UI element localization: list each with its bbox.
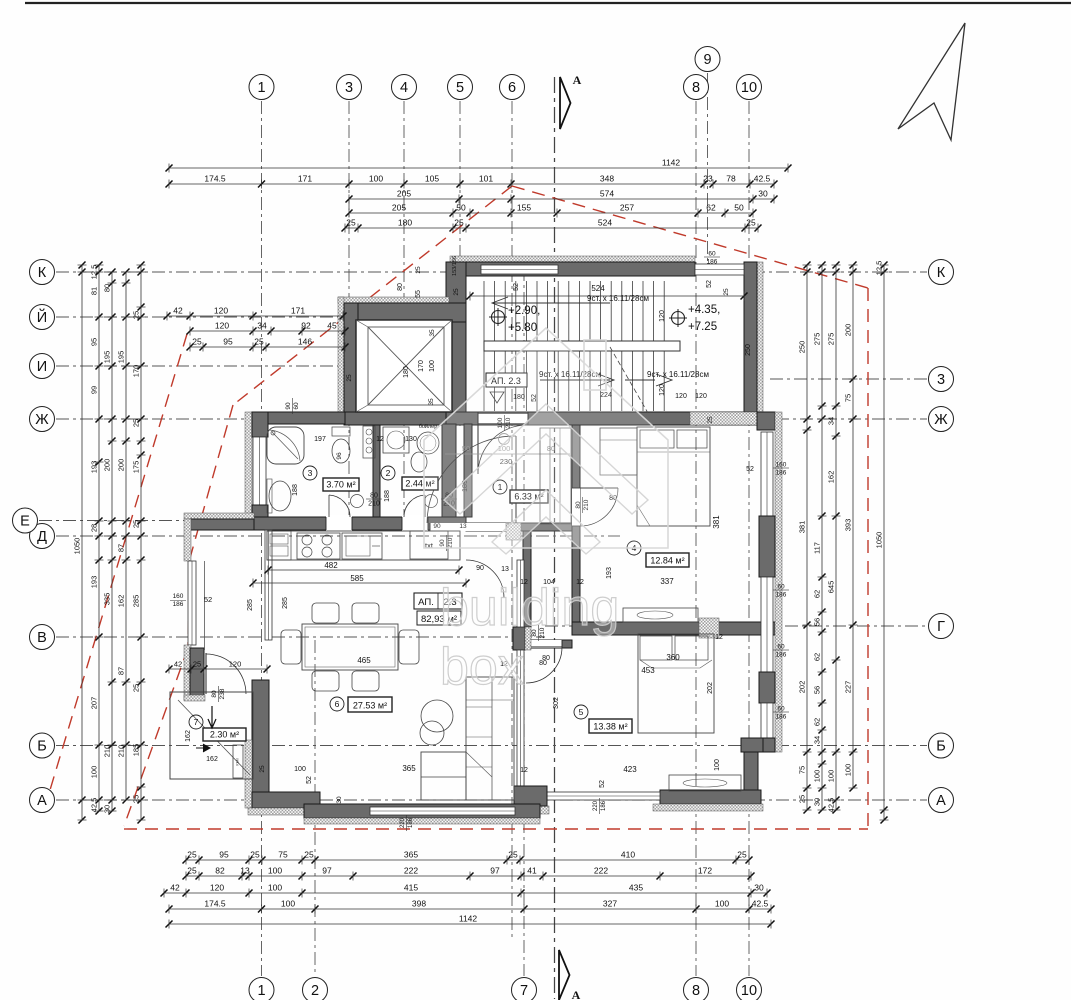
svg-text:25: 25 xyxy=(746,218,756,228)
svg-text:222: 222 xyxy=(404,866,418,876)
svg-text:62: 62 xyxy=(813,590,822,598)
svg-text:1142: 1142 xyxy=(662,158,681,168)
svg-text:30: 30 xyxy=(813,798,822,806)
svg-text:120: 120 xyxy=(210,883,224,893)
svg-text:56: 56 xyxy=(813,686,822,694)
svg-text:Г: Г xyxy=(937,619,945,635)
svg-text:188: 188 xyxy=(292,484,299,496)
svg-text:Б: Б xyxy=(37,739,47,755)
svg-text:207: 207 xyxy=(90,697,99,710)
svg-text:80: 80 xyxy=(103,284,112,292)
svg-text:25: 25 xyxy=(723,288,730,296)
svg-text:210: 210 xyxy=(368,501,380,508)
svg-text:25: 25 xyxy=(132,795,141,803)
svg-text:435: 435 xyxy=(629,883,643,893)
svg-text:120: 120 xyxy=(214,306,228,316)
svg-text:130: 130 xyxy=(405,436,417,443)
svg-text:30: 30 xyxy=(336,796,343,804)
svg-text:348: 348 xyxy=(600,174,614,184)
svg-text:42.5: 42.5 xyxy=(754,174,771,184)
svg-text:34: 34 xyxy=(813,736,822,744)
svg-text:205: 205 xyxy=(392,203,406,213)
svg-text:162: 162 xyxy=(827,471,836,484)
svg-text:5: 5 xyxy=(456,80,464,96)
svg-text:8: 8 xyxy=(692,80,700,96)
svg-text:393: 393 xyxy=(844,519,853,532)
svg-text:186: 186 xyxy=(776,652,787,659)
svg-text:30: 30 xyxy=(758,189,768,199)
svg-text:30: 30 xyxy=(754,883,764,893)
svg-text:162: 162 xyxy=(206,756,218,763)
svg-text:56: 56 xyxy=(813,618,822,626)
svg-text:28: 28 xyxy=(90,524,99,532)
svg-text:52: 52 xyxy=(746,466,754,473)
svg-text:25: 25 xyxy=(453,288,460,296)
svg-text:327: 327 xyxy=(603,899,617,909)
svg-text:155: 155 xyxy=(517,203,531,213)
svg-text:100: 100 xyxy=(813,770,822,783)
svg-text:Д: Д xyxy=(37,529,47,545)
svg-text:52: 52 xyxy=(513,283,520,291)
svg-text:45: 45 xyxy=(327,321,337,331)
svg-text:1142: 1142 xyxy=(459,914,478,924)
svg-text:6: 6 xyxy=(508,80,516,96)
svg-text:К: К xyxy=(38,265,47,281)
svg-text:+4.35,: +4.35, xyxy=(688,304,720,316)
svg-text:524: 524 xyxy=(598,218,612,228)
svg-text:120: 120 xyxy=(675,393,687,400)
svg-text:60: 60 xyxy=(777,584,785,591)
svg-text:337: 337 xyxy=(660,577,674,586)
svg-text:482: 482 xyxy=(324,561,338,570)
svg-text:99: 99 xyxy=(90,386,99,394)
svg-text:5: 5 xyxy=(579,707,584,717)
svg-text:185: 185 xyxy=(132,744,141,757)
svg-text:285: 285 xyxy=(247,599,254,611)
svg-text:90: 90 xyxy=(285,402,292,410)
svg-text:+2.90,: +2.90, xyxy=(508,305,540,317)
svg-text:80: 80 xyxy=(397,283,404,291)
svg-text:82: 82 xyxy=(215,866,225,876)
svg-text:415: 415 xyxy=(404,883,418,893)
svg-text:42.5: 42.5 xyxy=(90,798,99,813)
svg-text:12: 12 xyxy=(376,436,384,443)
svg-text:60: 60 xyxy=(708,251,716,258)
svg-text:195: 195 xyxy=(117,351,126,364)
svg-text:101: 101 xyxy=(479,174,493,184)
svg-text:97: 97 xyxy=(490,866,500,876)
svg-text:193: 193 xyxy=(606,567,613,579)
svg-text:12: 12 xyxy=(520,767,528,774)
svg-text:25: 25 xyxy=(707,416,714,424)
svg-text:42: 42 xyxy=(170,883,180,893)
svg-text:25: 25 xyxy=(132,520,141,528)
svg-text:171: 171 xyxy=(298,174,312,184)
svg-text:13: 13 xyxy=(501,566,509,573)
svg-text:1050: 1050 xyxy=(875,532,884,549)
svg-text:34: 34 xyxy=(257,321,267,331)
svg-text:398: 398 xyxy=(412,899,426,909)
svg-text:180: 180 xyxy=(398,218,412,228)
svg-text:90: 90 xyxy=(476,565,484,572)
svg-text:197: 197 xyxy=(314,436,326,443)
svg-text:335: 335 xyxy=(103,593,112,606)
svg-text:257: 257 xyxy=(620,203,634,213)
svg-text:25: 25 xyxy=(250,850,260,860)
svg-text:174.5: 174.5 xyxy=(204,899,226,909)
svg-text:2.30 м²: 2.30 м² xyxy=(210,730,239,740)
svg-text:9ст. x 16.11/28см: 9ст. x 16.11/28см xyxy=(647,370,709,379)
svg-text:10: 10 xyxy=(741,80,757,96)
svg-text:25: 25 xyxy=(415,266,422,274)
svg-text:381: 381 xyxy=(798,521,807,534)
svg-text:200: 200 xyxy=(117,459,126,472)
svg-text:227: 227 xyxy=(844,681,853,694)
svg-text:25: 25 xyxy=(187,850,197,860)
svg-text:250: 250 xyxy=(745,344,752,356)
svg-text:25: 25 xyxy=(132,311,141,319)
svg-text:78: 78 xyxy=(726,174,736,184)
svg-text:410: 410 xyxy=(621,850,635,860)
svg-text:50: 50 xyxy=(456,203,466,213)
svg-text:9: 9 xyxy=(703,52,711,68)
svg-text:381: 381 xyxy=(712,515,721,529)
svg-text:25: 25 xyxy=(193,660,201,669)
svg-text:62: 62 xyxy=(706,203,716,213)
svg-text:7: 7 xyxy=(520,983,528,999)
svg-text:+7.25: +7.25 xyxy=(688,321,717,333)
svg-text:250: 250 xyxy=(798,341,807,354)
svg-text:302: 302 xyxy=(553,697,560,709)
svg-text:585: 585 xyxy=(350,574,364,583)
svg-text:81: 81 xyxy=(90,287,99,295)
svg-text:170: 170 xyxy=(132,365,141,378)
svg-text:35: 35 xyxy=(428,398,435,406)
svg-text:120: 120 xyxy=(215,321,229,331)
svg-text:75: 75 xyxy=(798,766,807,774)
svg-text:360: 360 xyxy=(666,653,680,662)
svg-text:180: 180 xyxy=(403,366,410,378)
svg-text:4: 4 xyxy=(400,80,408,96)
svg-text:box: box xyxy=(440,638,524,696)
svg-text:Е: Е xyxy=(20,514,30,530)
svg-text:365: 365 xyxy=(404,850,418,860)
svg-text:13: 13 xyxy=(240,866,250,876)
svg-text:100: 100 xyxy=(294,766,306,773)
svg-text:95: 95 xyxy=(223,337,233,347)
svg-text:238: 238 xyxy=(219,688,226,699)
svg-text:120: 120 xyxy=(659,310,666,322)
svg-text:193: 193 xyxy=(90,461,99,474)
svg-text:42: 42 xyxy=(174,660,182,669)
svg-text:Ж: Ж xyxy=(934,412,948,428)
svg-text:100: 100 xyxy=(281,899,295,909)
svg-text:120: 120 xyxy=(229,660,242,669)
svg-text:100: 100 xyxy=(90,766,99,779)
svg-text:В: В xyxy=(37,630,47,646)
svg-text:55: 55 xyxy=(415,290,422,298)
svg-text:645: 645 xyxy=(827,581,836,594)
svg-text:2: 2 xyxy=(386,468,391,478)
svg-text:25: 25 xyxy=(508,850,518,860)
svg-text:160: 160 xyxy=(173,593,184,600)
svg-text:12: 12 xyxy=(715,634,723,641)
svg-text:25: 25 xyxy=(346,374,353,382)
svg-text:172: 172 xyxy=(698,866,712,876)
svg-text:25: 25 xyxy=(132,419,141,427)
svg-text:186: 186 xyxy=(776,714,787,721)
svg-text:188: 188 xyxy=(384,490,391,502)
svg-text:building: building xyxy=(440,579,619,637)
svg-text:171: 171 xyxy=(291,306,305,316)
svg-text:+5.80: +5.80 xyxy=(508,322,537,334)
svg-text:3: 3 xyxy=(937,372,945,388)
svg-text:193: 193 xyxy=(90,576,99,589)
svg-text:23: 23 xyxy=(703,174,713,184)
svg-text:А: А xyxy=(572,988,581,1000)
svg-text:285: 285 xyxy=(282,597,289,609)
svg-text:210: 210 xyxy=(103,745,112,758)
svg-text:60: 60 xyxy=(777,644,785,651)
svg-text:42: 42 xyxy=(173,306,183,316)
svg-text:12.5: 12.5 xyxy=(875,261,884,276)
svg-text:423: 423 xyxy=(623,765,637,774)
svg-text:120: 120 xyxy=(695,393,707,400)
svg-text:210: 210 xyxy=(117,745,126,758)
svg-text:Й: Й xyxy=(37,308,47,326)
svg-text:160: 160 xyxy=(776,462,787,469)
svg-text:195: 195 xyxy=(103,351,112,364)
svg-text:162: 162 xyxy=(185,730,192,742)
svg-text:12.5: 12.5 xyxy=(90,265,99,280)
svg-text:275: 275 xyxy=(827,333,836,346)
svg-text:А: А xyxy=(936,793,946,809)
svg-text:524: 524 xyxy=(591,284,605,293)
svg-text:25: 25 xyxy=(187,866,197,876)
svg-text:52: 52 xyxy=(706,280,713,288)
svg-text:100: 100 xyxy=(268,883,282,893)
svg-text:222: 222 xyxy=(594,866,608,876)
svg-text:27.53 м²: 27.53 м² xyxy=(353,701,387,711)
svg-text:60: 60 xyxy=(777,706,785,713)
svg-text:87: 87 xyxy=(117,667,126,675)
svg-text:453: 453 xyxy=(641,666,655,675)
svg-text:105: 105 xyxy=(425,174,439,184)
svg-text:95: 95 xyxy=(90,338,99,346)
svg-text:574: 574 xyxy=(600,189,614,199)
svg-text:186: 186 xyxy=(601,800,607,811)
svg-text:42.5: 42.5 xyxy=(752,899,769,909)
svg-text:186: 186 xyxy=(776,470,787,477)
svg-text:1050: 1050 xyxy=(73,538,82,555)
svg-text:62: 62 xyxy=(813,718,822,726)
svg-text:25: 25 xyxy=(737,850,747,860)
svg-text:КЪМ: КЪМ xyxy=(236,758,240,765)
svg-text:285: 285 xyxy=(132,595,141,608)
svg-text:50: 50 xyxy=(734,203,744,213)
svg-text:25: 25 xyxy=(798,795,807,803)
svg-text:100: 100 xyxy=(369,174,383,184)
svg-text:25: 25 xyxy=(346,218,356,228)
svg-text:25: 25 xyxy=(259,765,266,773)
svg-text:К: К xyxy=(937,265,946,281)
svg-text:75: 75 xyxy=(278,850,288,860)
svg-text:6: 6 xyxy=(335,699,340,709)
svg-text:146: 146 xyxy=(298,337,312,347)
svg-text:186: 186 xyxy=(173,601,184,608)
svg-text:12.84 м²: 12.84 м² xyxy=(650,556,684,566)
svg-text:3: 3 xyxy=(345,80,353,96)
svg-text:92: 92 xyxy=(301,321,311,331)
svg-text:бойлер: бойлер xyxy=(419,423,438,430)
svg-text:8: 8 xyxy=(692,983,700,999)
svg-text:100: 100 xyxy=(429,360,436,372)
svg-text:3: 3 xyxy=(308,468,313,478)
svg-text:205: 205 xyxy=(397,189,411,199)
svg-text:АП.: АП. xyxy=(418,597,434,608)
svg-text:100: 100 xyxy=(714,759,721,771)
svg-text:7: 7 xyxy=(194,717,199,727)
svg-text:Ж: Ж xyxy=(35,412,49,428)
svg-text:9ст. x 16.11/28см: 9ст. x 16.11/28см xyxy=(587,294,649,303)
svg-text:117: 117 xyxy=(813,542,822,554)
svg-text:186: 186 xyxy=(408,817,414,828)
svg-text:202: 202 xyxy=(707,682,714,694)
svg-text:А: А xyxy=(573,73,582,87)
svg-text:100: 100 xyxy=(844,764,853,777)
svg-text:60: 60 xyxy=(293,402,300,410)
svg-text:153/186: 153/186 xyxy=(452,256,458,276)
svg-text:75: 75 xyxy=(844,394,853,402)
svg-text:Б: Б xyxy=(936,739,946,755)
svg-text:200: 200 xyxy=(103,459,112,472)
svg-text:80: 80 xyxy=(211,690,218,698)
svg-text:174.5: 174.5 xyxy=(204,174,226,184)
svg-text:35: 35 xyxy=(429,329,436,337)
svg-text:220: 220 xyxy=(593,800,599,811)
svg-text:220: 220 xyxy=(400,817,406,828)
svg-text:97: 97 xyxy=(322,866,332,876)
svg-text:200: 200 xyxy=(844,324,853,337)
svg-text:120: 120 xyxy=(659,384,666,396)
svg-text:95: 95 xyxy=(219,850,229,860)
svg-text:80: 80 xyxy=(370,493,378,500)
svg-text:25: 25 xyxy=(454,218,464,228)
svg-text:62: 62 xyxy=(813,653,822,661)
svg-text:30: 30 xyxy=(103,805,112,813)
svg-text:52: 52 xyxy=(599,780,606,788)
svg-text:162: 162 xyxy=(117,595,126,608)
svg-text:1: 1 xyxy=(257,80,265,96)
svg-text:80: 80 xyxy=(542,655,550,662)
svg-text:41: 41 xyxy=(527,866,537,876)
svg-text:И: И xyxy=(37,359,47,375)
svg-text:1: 1 xyxy=(257,983,265,999)
svg-text:87: 87 xyxy=(117,544,126,552)
svg-text:25: 25 xyxy=(132,684,141,692)
svg-text:42.5: 42.5 xyxy=(827,798,836,813)
svg-text:365: 365 xyxy=(402,764,416,773)
svg-text:52: 52 xyxy=(306,776,313,784)
svg-text:25: 25 xyxy=(192,337,202,347)
svg-text:52: 52 xyxy=(204,595,212,604)
svg-text:А: А xyxy=(37,793,47,809)
svg-text:34: 34 xyxy=(827,417,836,425)
svg-text:100: 100 xyxy=(827,770,836,783)
svg-text:96: 96 xyxy=(336,452,343,460)
svg-text:2: 2 xyxy=(311,983,319,999)
svg-text:202: 202 xyxy=(798,681,807,694)
svg-text:186: 186 xyxy=(776,592,787,599)
svg-text:25: 25 xyxy=(304,850,314,860)
svg-text:175: 175 xyxy=(132,461,141,474)
svg-text:465: 465 xyxy=(357,656,371,665)
svg-text:275: 275 xyxy=(813,333,822,346)
svg-text:100: 100 xyxy=(268,866,282,876)
svg-text:170: 170 xyxy=(418,360,425,372)
svg-text:100: 100 xyxy=(715,899,729,909)
svg-text:25: 25 xyxy=(254,337,264,347)
svg-text:186: 186 xyxy=(707,259,718,266)
svg-text:13.38 м²: 13.38 м² xyxy=(593,722,627,732)
svg-text:3.70 м²: 3.70 м² xyxy=(326,480,355,490)
svg-text:10: 10 xyxy=(741,983,757,999)
